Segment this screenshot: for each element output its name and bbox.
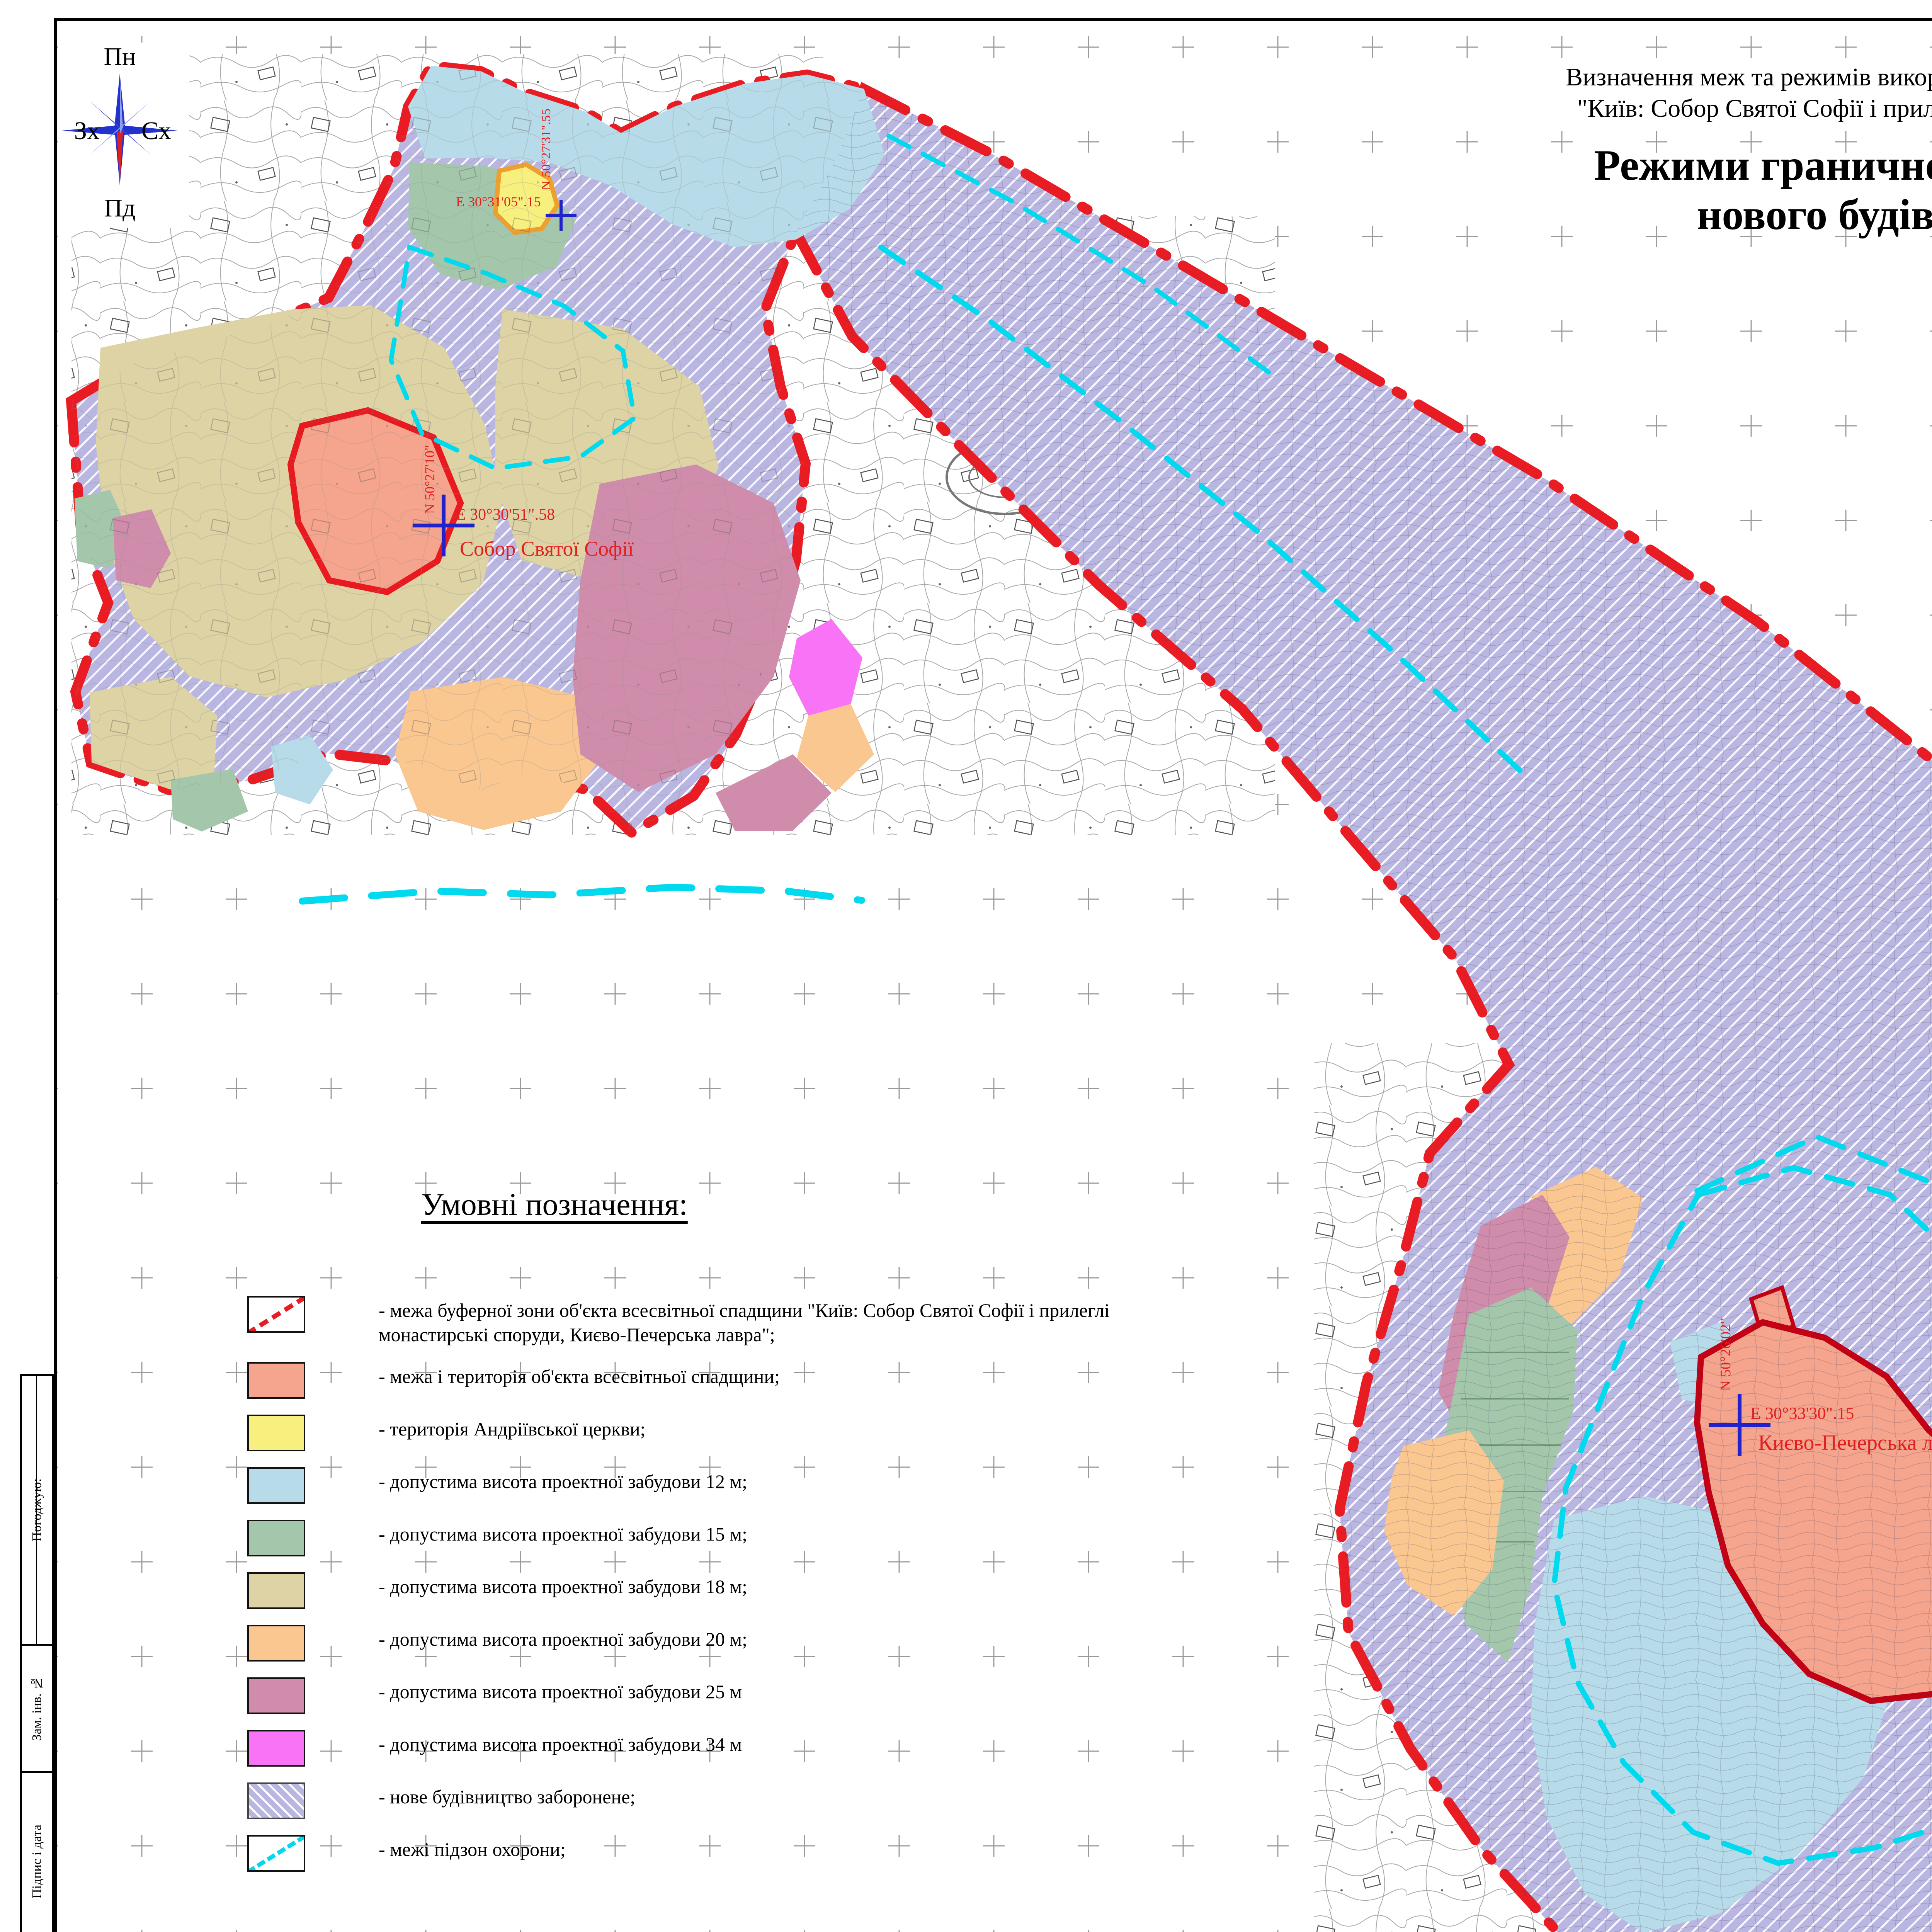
legend-swatch-34m-icon: [247, 1730, 305, 1767]
lavra-coord-n: N 50°26'02": [1718, 1318, 1734, 1391]
legend-label: - допустима висота проектної забудови 18…: [379, 1572, 747, 1599]
legend-swatch-15m-icon: [247, 1520, 305, 1556]
legend-item-height-34: - допустима висота проектної забудови 34…: [247, 1730, 1194, 1767]
legend-item-andriivska: - територія Андріївської церкви;: [247, 1415, 1194, 1452]
legend-label: - допустима висота проектної забудови 34…: [379, 1730, 742, 1757]
drawing-sheet: E 30°30'51".58 N 50°27'10" Собор Святої …: [0, 0, 1932, 1932]
legend-swatch-heritage-icon: [247, 1362, 305, 1399]
andriivska-coord-n: N 50°27'31".55: [539, 109, 553, 190]
legend-label: - нове будівництво заборонене;: [379, 1782, 635, 1809]
legend-label: - допустима висота проектної забудови 20…: [379, 1625, 747, 1651]
strip-approve-label: Погоджую:: [30, 1478, 44, 1541]
legend-item-height-12: - допустима висота проектної забудови 12…: [247, 1467, 1194, 1504]
legend: Умовні позначення: - межа буферної зони …: [247, 1186, 1194, 1888]
legend-label: - межі підзон охорони;: [379, 1835, 566, 1862]
legend-item-heritage-territory: - межа і територія об'єкта всесвітньої с…: [247, 1362, 1194, 1399]
lavra-coord-e: E 30°33'30".15: [1750, 1404, 1854, 1423]
compass-north-label: Пн: [104, 43, 136, 71]
legend-swatch-red-dashdot-icon: [247, 1296, 305, 1333]
strip-pidpys-label: Підпис і дата: [30, 1825, 44, 1898]
legend-label: - допустима висота проектної забудови 25…: [379, 1677, 742, 1704]
legend-item-height-15: - допустима висота проектної забудови 15…: [247, 1520, 1194, 1557]
strip-zam-inv: Зам. інв. №: [22, 1646, 52, 1773]
strip-approve: Погоджую:: [22, 1376, 52, 1646]
legend-label: - межа і територія об'єкта всесвітньої с…: [379, 1362, 780, 1389]
page-title-line2: нового будівництва і реконструкції: [1399, 190, 1932, 240]
lavra-label: Києво-Печерська лавра: [1758, 1431, 1932, 1455]
header-subtitle-line1: Визначення меж та режимів використання б…: [1399, 62, 1932, 93]
legend-item-buffer-boundary: - межа буферної зони об'єкта всесвітньої…: [247, 1296, 1194, 1347]
legend-item-height-25: - допустима висота проектної забудови 25…: [247, 1677, 1194, 1714]
header: Визначення меж та режимів використання б…: [1399, 62, 1932, 311]
legend-label: - допустима висота проектної забудови 15…: [379, 1520, 747, 1546]
legend-swatch-18m-icon: [247, 1572, 305, 1609]
compass-south-label: Пд: [104, 194, 135, 222]
compass-rose: Пн Пд Зх Сх: [58, 43, 189, 228]
header-subtitle-line2: "Київ: Собор Святої Софії і прилеглі мон…: [1399, 93, 1932, 124]
map-scale-text: М 1 : 5 000: [1399, 273, 1932, 311]
legend-label: - межа буферної зони об'єкта всесвітньої…: [379, 1296, 1113, 1347]
legend-swatch-12m-icon: [247, 1467, 305, 1504]
legend-label: - допустима висота проектної забудови 12…: [379, 1467, 747, 1494]
legend-item-height-18: - допустима висота проектної забудови 18…: [247, 1572, 1194, 1609]
legend-swatch-hatch-icon: [247, 1782, 305, 1819]
legend-swatch-cyan-dash-icon: [247, 1835, 305, 1872]
sofia-coord-e: E 30°30'51".58: [456, 506, 555, 524]
sofia-label: Собор Святої Софії: [460, 537, 634, 560]
andriivska-coord-e: E 30°31'05".15: [456, 194, 541, 209]
legend-item-height-20: - допустима висота проектної забудови 20…: [247, 1625, 1194, 1662]
legend-label: - територія Андріївської церкви;: [379, 1415, 646, 1441]
strip-pidpys: Підпис і дата: [22, 1773, 52, 1932]
legend-item-no-construction: - нове будівництво заборонене;: [247, 1782, 1194, 1820]
strip-zam-inv-label: Зам. інв. №: [30, 1676, 44, 1741]
legend-swatch-20m-icon: [247, 1625, 305, 1662]
legend-heading: Умовні позначення:: [421, 1186, 1194, 1223]
legend-item-subzones: - межі підзон охорони;: [247, 1835, 1194, 1872]
legend-swatch-andriivska-icon: [247, 1415, 305, 1451]
page-title: Режими гранично допустимої висоти об'єкт…: [1399, 141, 1932, 240]
page-title-line1: Режими гранично допустимої висоти об'єкт…: [1399, 141, 1932, 190]
sofia-coord-n: N 50°27'10": [422, 445, 437, 514]
side-stamp-strip: Погоджую: Зам. інв. № Підпис і дата Інв.…: [20, 1374, 54, 1932]
compass-east-label: Сх: [141, 117, 171, 145]
compass-west-label: Зх: [74, 117, 100, 145]
legend-swatch-25m-icon: [247, 1677, 305, 1714]
